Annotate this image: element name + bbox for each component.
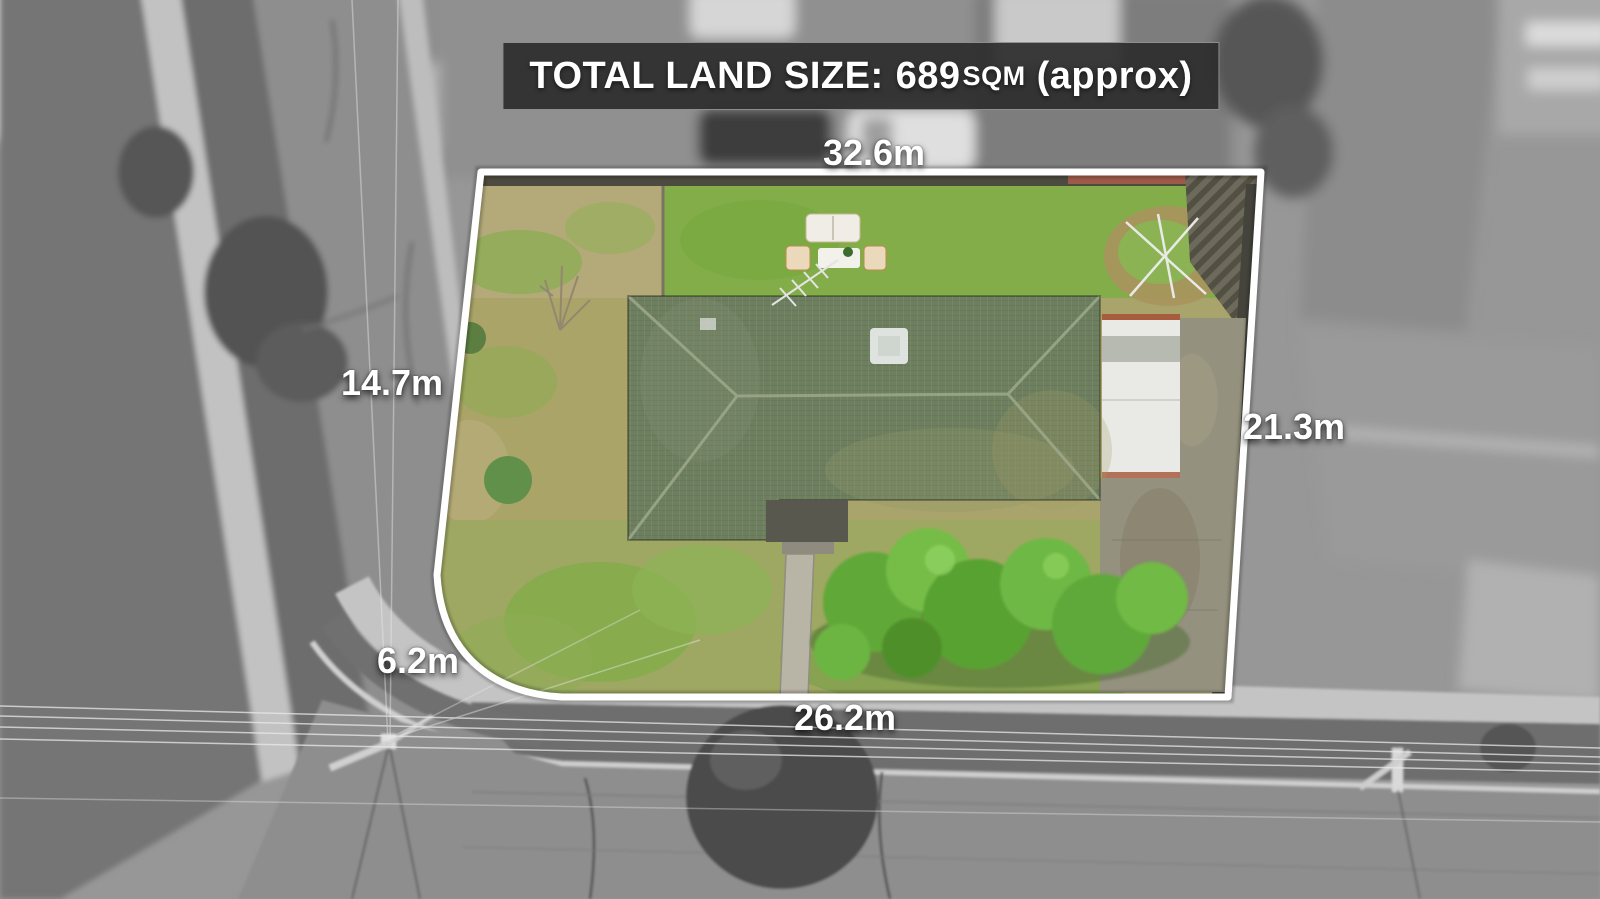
land-size-banner: TOTAL LAND SIZE:689SQM(approx) [502, 42, 1219, 110]
property-lot [420, 160, 1280, 710]
banner-unit: SQM [963, 61, 1026, 92]
banner-suffix: (approx) [1037, 55, 1193, 98]
dimension-left: 14.7m [341, 362, 443, 404]
dimension-top: 32.6m [823, 132, 925, 174]
dimension-corner: 6.2m [377, 640, 459, 682]
shrub-large [484, 456, 532, 504]
banner-label: TOTAL LAND SIZE: [529, 55, 883, 98]
backyard-lawn [437, 186, 1232, 306]
aerial-photo: TOTAL LAND SIZE:689SQM(approx) 32.6m 14.… [0, 0, 1600, 899]
dimension-bottom: 26.2m [794, 697, 896, 739]
garage-roof [1102, 314, 1180, 478]
aerial-scene [0, 0, 1600, 899]
dimension-right: 21.3m [1243, 406, 1345, 448]
banner-value: 689 [896, 55, 961, 98]
